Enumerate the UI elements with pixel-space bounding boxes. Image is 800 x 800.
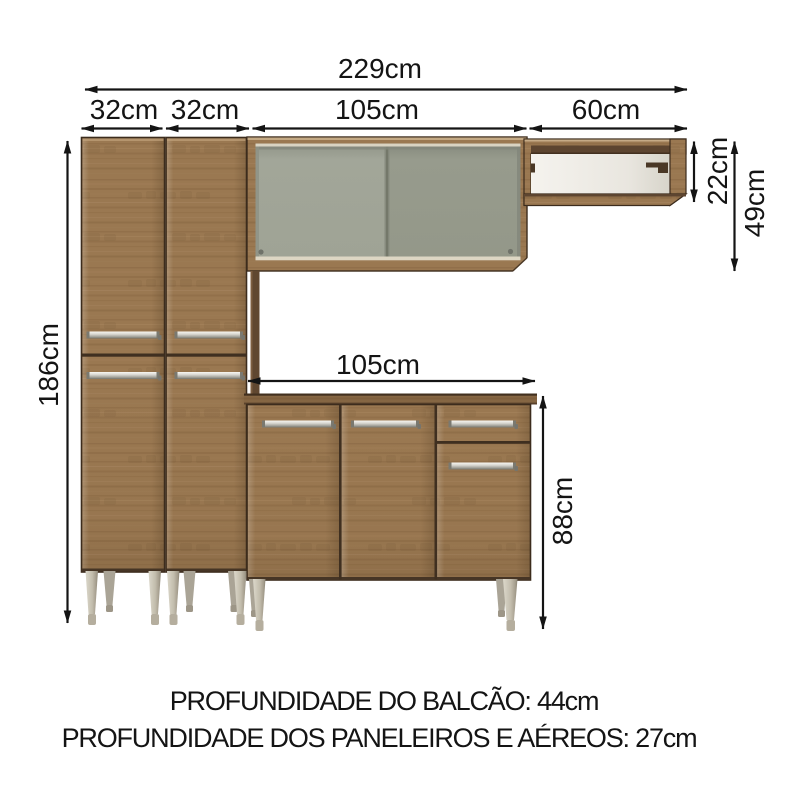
svg-text:88cm: 88cm bbox=[547, 477, 578, 545]
svg-text:32cm: 32cm bbox=[171, 94, 239, 125]
svg-text:186cm: 186cm bbox=[33, 323, 64, 407]
svg-text:49cm: 49cm bbox=[739, 169, 770, 237]
svg-text:105cm: 105cm bbox=[336, 349, 420, 380]
svg-text:229cm: 229cm bbox=[338, 53, 422, 84]
svg-text:60cm: 60cm bbox=[572, 94, 640, 125]
svg-text:PROFUNDIDADE DO BALCÃO: 44cm: PROFUNDIDADE DO BALCÃO: 44cm bbox=[170, 685, 599, 716]
svg-text:105cm: 105cm bbox=[335, 94, 419, 125]
svg-text:PROFUNDIDADE DOS PANELEIROS E: PROFUNDIDADE DOS PANELEIROS E AÉREOS: 27… bbox=[62, 723, 697, 753]
svg-text:22cm: 22cm bbox=[702, 137, 733, 205]
svg-text:32cm: 32cm bbox=[90, 94, 158, 125]
